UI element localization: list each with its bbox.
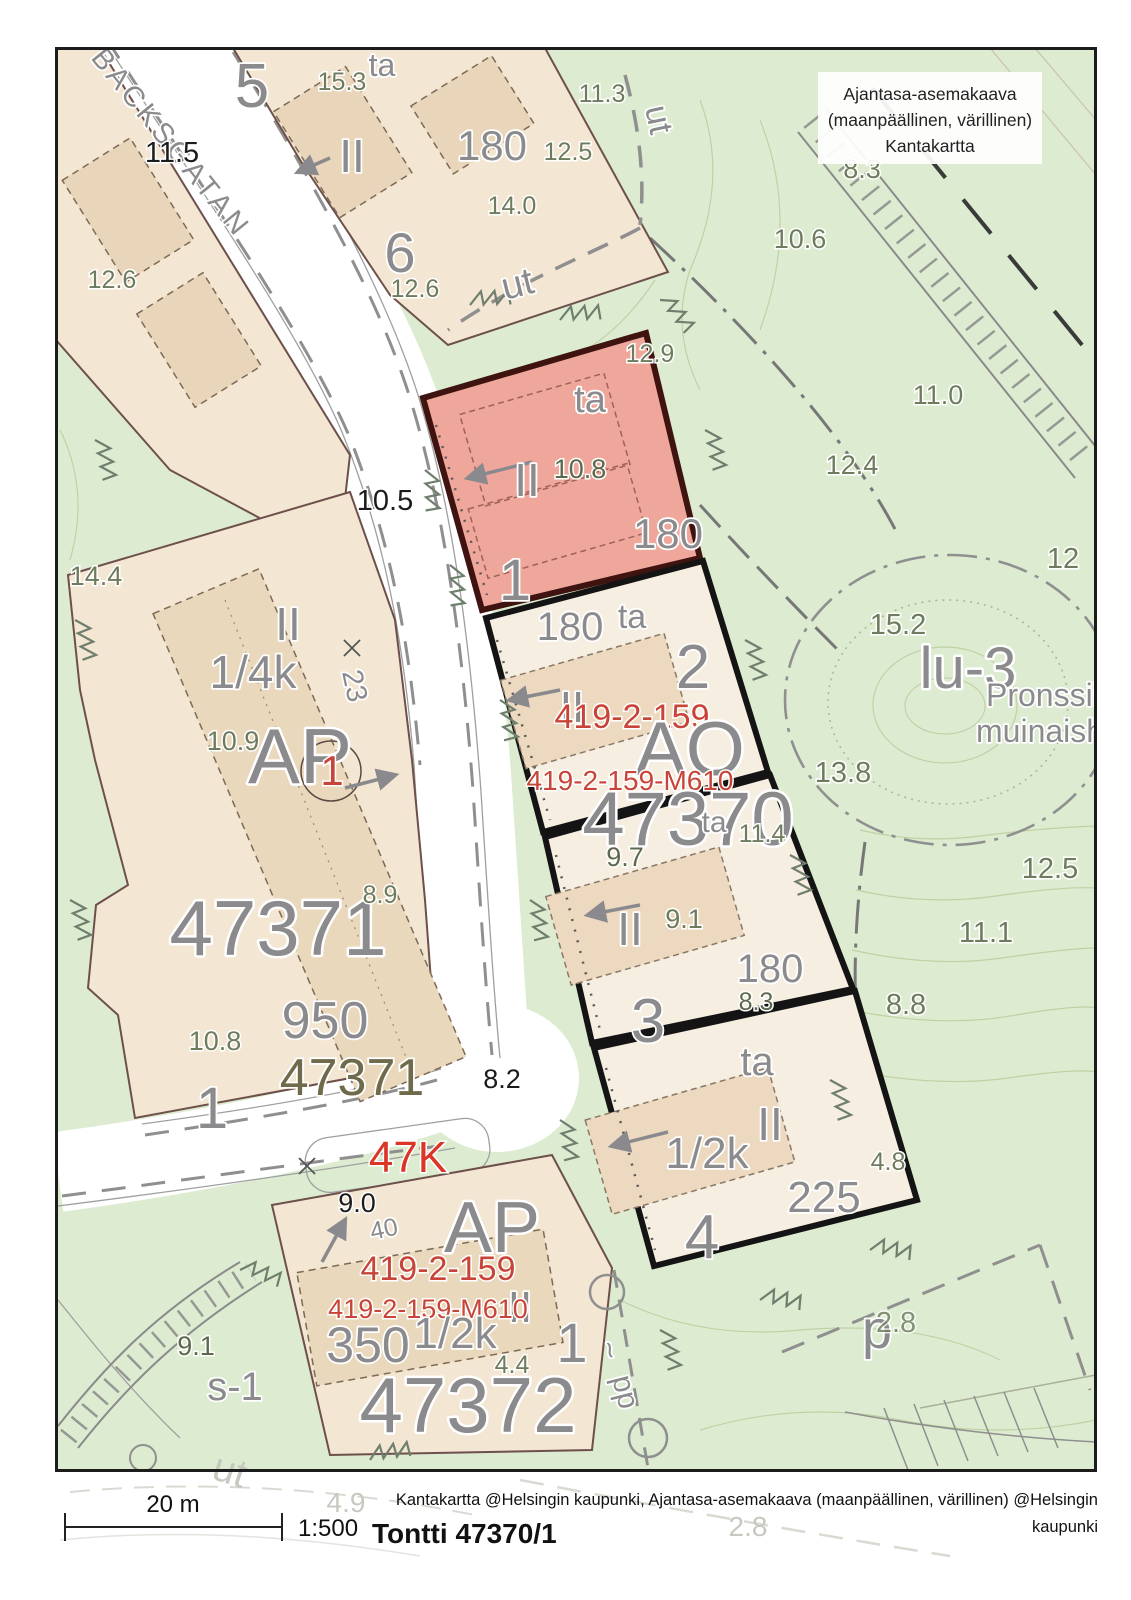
plot3-ta: ta: [701, 806, 726, 839]
credit-line-1: Kantakartta @Helsingin kaupunki, Ajantas…: [396, 1491, 1098, 1509]
block-number-47372: 47372: [360, 1361, 577, 1449]
zoning-map-canvas: BACKSGATAN 5 15.3 ta 11.5 II 180 12.5 14…: [0, 0, 1131, 1600]
elevation-11-4: 11.4: [739, 820, 786, 848]
road-width-10-5: 10.5: [357, 485, 413, 517]
storeys-top: II: [339, 130, 365, 182]
plot1-number: 1: [499, 548, 531, 613]
elevation-2-8: 2.8: [876, 1307, 916, 1339]
elevation-13-8: 13.8: [815, 757, 871, 789]
elevation-10-6: 10.6: [774, 224, 827, 254]
plot3-dim-9-1: 9.1: [665, 904, 703, 934]
cadastral-47371: 47371: [280, 1049, 425, 1107]
credit-line-2: kaupunki: [1032, 1518, 1098, 1536]
elevation-15-3: 15.3: [318, 68, 367, 96]
scale-ratio: 1:500: [298, 1515, 358, 1542]
ap1-quarter-k: 1/4k: [210, 646, 298, 698]
road-width-8-2: 8.2: [483, 1064, 521, 1094]
block-number-5: 5: [235, 52, 269, 121]
plot1-ta: ta: [574, 379, 607, 421]
plot3-number: 3: [631, 987, 665, 1056]
elevation-10-8: 10.8: [189, 1026, 242, 1056]
ta-label-top: ta: [369, 47, 396, 83]
plot3-dim-8-3: 8.3: [739, 988, 774, 1016]
ap2-half-k: 1/2k: [413, 1309, 497, 1358]
plot3-storeys: II: [617, 903, 643, 955]
floor-area-950: 950: [282, 992, 369, 1050]
faded-2-8-label: 2.8: [729, 1511, 768, 1542]
elevation-12-6-a: 12.6: [88, 266, 137, 294]
elevation-11-3: 11.3: [579, 80, 626, 108]
elevation-12-5: 12.5: [544, 138, 593, 166]
legend-box: Ajantasa-asemakaava (maanpäällinen, väri…: [818, 72, 1042, 164]
plot1-dim-10-8: 10.8: [554, 454, 607, 484]
elevation-14-4: 14.4: [70, 561, 123, 591]
legend-line-3: Kantakartta: [885, 136, 975, 156]
ap1-storeys: II: [275, 598, 301, 650]
dim-23-rotated: 23: [335, 667, 373, 705]
ap2-register-id: 419-2-159: [360, 1250, 515, 1288]
plot4-half-k: 1/2k: [665, 1129, 749, 1178]
elevation-11-0: 11.0: [913, 380, 964, 410]
map-content: BACKSGATAN 5 15.3 ta 11.5 II 180 12.5 14…: [56, 0, 1127, 1471]
road-width-11-5: 11.5: [145, 137, 199, 169]
elevation-15-2: 15.2: [870, 609, 926, 641]
elevation-12-5-right: 12.5: [1022, 853, 1078, 885]
plot4-storeys: II: [757, 1098, 783, 1150]
map-title: Tontti 47370/1: [372, 1518, 557, 1549]
plot2-floor-area: 180: [537, 605, 604, 649]
scale-label: 20 m: [146, 1491, 199, 1518]
plot3-dim-9-7: 9.7: [606, 842, 644, 872]
elevation-8-9: 8.9: [363, 881, 398, 909]
elevation-11-1: 11.1: [959, 917, 1013, 949]
plot4-ta: ta: [740, 1040, 774, 1084]
faded-4-9-label: 4.9: [327, 1487, 366, 1518]
elevation-12-9: 12.9: [626, 340, 675, 368]
floor-area-180-top: 180: [457, 122, 527, 169]
elevation-9-1: 9.1: [177, 1331, 215, 1361]
elevation-8-8: 8.8: [886, 989, 926, 1021]
plot2-ta: ta: [618, 598, 646, 636]
dim-40-rotated: 40: [367, 1213, 400, 1246]
elevation-14-0: 14.0: [488, 192, 537, 220]
elevation-12-right: 12: [1047, 543, 1079, 575]
elevation-12-4: 12.4: [826, 450, 879, 480]
legend-line-1: Ajantasa-asemakaava: [843, 84, 1016, 104]
zone-s1-label: s-1: [207, 1365, 263, 1409]
street-area-47k: 47K: [369, 1133, 447, 1182]
ap1-red-plot-number: 1: [320, 747, 343, 794]
plot1-floor-area: 180: [633, 510, 703, 557]
plot1-storeys: II: [514, 454, 540, 506]
plot4-number: 4: [685, 1203, 719, 1272]
road-width-9-0: 9.0: [338, 1188, 376, 1218]
elevation-12-6-b: 12.6: [391, 275, 440, 303]
plot4-floor-area: 225: [787, 1173, 860, 1222]
zoning-map-page: BACKSGATAN 5 15.3 ta 11.5 II 180 12.5 14…: [0, 0, 1131, 1600]
elevation-4-8: 4.8: [871, 1148, 906, 1176]
legend-line-2: (maanpäällinen, värillinen): [828, 110, 1032, 130]
block-number-47371: 47371: [170, 884, 387, 972]
ap1-plot-number: 1: [196, 1076, 228, 1141]
plot3-floor-area: 180: [737, 947, 804, 991]
plot2-number: 2: [676, 633, 710, 702]
